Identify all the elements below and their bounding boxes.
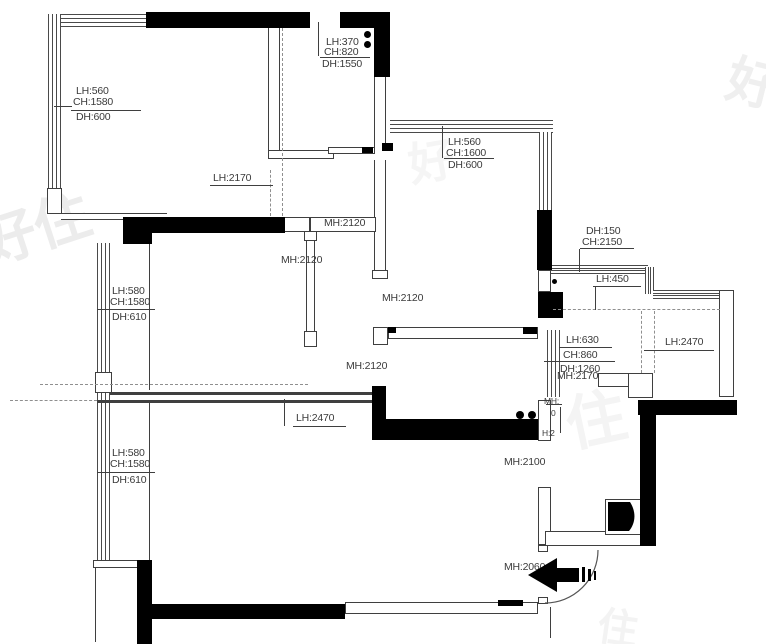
leader [559, 347, 612, 348]
entrance-arrow-hatch [588, 569, 591, 581]
entrance-arrow-hatch [594, 571, 596, 580]
floor-plan: 好住 好 住 好 住 [0, 0, 766, 644]
label-closet-window: DH:1550 [322, 59, 362, 70]
sliding-panel-a [268, 150, 334, 159]
tr-wall-jamb [538, 270, 551, 292]
wall-bath-right [640, 400, 656, 546]
watermark-bottom: 住 [594, 593, 642, 644]
wall-bottom-left-v [137, 560, 152, 644]
window-top-left-h [50, 14, 148, 27]
wall-tick-a [382, 143, 393, 151]
leader [544, 361, 615, 362]
wall-tick-c [388, 327, 396, 333]
label-closet-window: CH:820 [324, 47, 358, 58]
sill-line-upper [149, 232, 150, 390]
center-door-jamb-top [372, 270, 388, 279]
door-swing-arc [545, 550, 598, 603]
label-door-living: MH:2120 [281, 255, 322, 266]
label-window-bottom-left: CH:1580 [110, 459, 150, 470]
leader [579, 249, 580, 272]
wall-top-right-v [374, 12, 390, 77]
window-bottom-left [97, 392, 110, 562]
label-door-top: MH:2120 [324, 218, 365, 229]
leader [54, 106, 72, 107]
label-beam-right: LH:2470 [665, 337, 703, 348]
dashed-bay [553, 309, 720, 310]
wall-center-band [372, 419, 538, 440]
label-window-mid-left: DH:610 [112, 312, 146, 323]
label-fragment: MH: [544, 397, 559, 406]
shower-outline [605, 499, 644, 535]
label-beam-left: LH:2470 [296, 413, 334, 424]
right-door-opening-b [628, 373, 653, 398]
label-bay-sill: LH:450 [596, 274, 629, 285]
label-entry-door: MH:2060 [504, 562, 545, 573]
label-window-top-right: DH:600 [448, 160, 482, 171]
wall-tick-b [362, 147, 373, 153]
label-glass-partition: CH:860 [563, 350, 597, 361]
window-top-right-v [539, 132, 552, 210]
label-fragment: 0 [551, 409, 556, 418]
leader [97, 309, 155, 310]
label-fragment: H:2 [542, 429, 555, 438]
partition-line-lower [97, 400, 373, 403]
leader [97, 472, 155, 473]
leader [595, 287, 596, 310]
center-wall-upper [374, 77, 386, 151]
label-window-mid-left: CH:1580 [110, 297, 150, 308]
wall-tr-vertical [537, 210, 552, 270]
label-door-right: MH:2170 [557, 371, 598, 382]
exterior-face-line [95, 568, 96, 642]
window-top-left-v [48, 14, 61, 196]
label-window-top-right: CH:1600 [446, 148, 486, 159]
marker-dot [364, 41, 371, 48]
watermark-right: 好 [720, 37, 766, 122]
dashed-closet [282, 28, 283, 216]
wall-bottom-band [152, 604, 345, 619]
bottom-left-jamb [93, 560, 138, 568]
living-wall-jamb-bottom [304, 331, 317, 347]
label-window-top-left: CH:1580 [73, 97, 113, 108]
bedroom2-bottom-wall [388, 327, 538, 339]
leader [293, 426, 346, 427]
center-wall-mid [374, 160, 386, 272]
entry-jamb-bottom [538, 597, 548, 604]
sill-line-lower [149, 403, 150, 560]
left-wall-jamb-top [47, 188, 62, 214]
wall-tr-vertical2 [538, 292, 563, 318]
label-window-top-left: DH:600 [76, 112, 110, 123]
label-door-center: MH:2120 [382, 293, 423, 304]
marker-dot [528, 411, 536, 419]
label-door-hall: MH:2120 [346, 361, 387, 372]
leader [644, 350, 714, 351]
marker-dot [364, 31, 371, 38]
label-sliding-door: LH:2170 [213, 173, 251, 184]
closet-left-wall [268, 28, 280, 152]
leader [284, 399, 285, 426]
marker-dot [552, 279, 557, 284]
dashed-living-a [40, 384, 308, 385]
label-glass-partition: LH:630 [566, 335, 599, 346]
wall-tick-d [523, 327, 537, 334]
dashed-closet2 [270, 170, 271, 216]
leader [442, 126, 443, 158]
leader [210, 185, 273, 186]
right-exterior-wall [719, 290, 734, 397]
below-entry-line [550, 607, 551, 638]
leader [560, 407, 561, 433]
window-top-right-h [390, 120, 553, 133]
entry-jamb-top [538, 545, 548, 552]
top-band-door-gap [284, 217, 310, 232]
dashed-living-b [10, 400, 97, 401]
partition-line-upper [110, 392, 373, 395]
label-door-bath: MH:2100 [504, 457, 545, 468]
marker-dot [516, 411, 524, 419]
window-mid-left [97, 243, 110, 372]
entrance-arrow-hatch [582, 567, 585, 582]
dashed-right-b [654, 311, 655, 373]
label-window-bottom-left: DH:610 [112, 475, 146, 486]
bottom-door-bar [498, 600, 523, 606]
glass-partition [547, 330, 560, 397]
bay-window-lower [653, 290, 720, 299]
label-bay-window: CH:2150 [582, 237, 622, 248]
center-door-jamb-bottom [373, 327, 388, 345]
mid-left-jamb [95, 372, 112, 393]
leader [593, 286, 641, 287]
wall-band-left-ext [123, 217, 152, 244]
dashed-right-a [641, 311, 642, 373]
leader [580, 248, 634, 249]
leader [318, 22, 319, 56]
wall-top [146, 12, 310, 28]
